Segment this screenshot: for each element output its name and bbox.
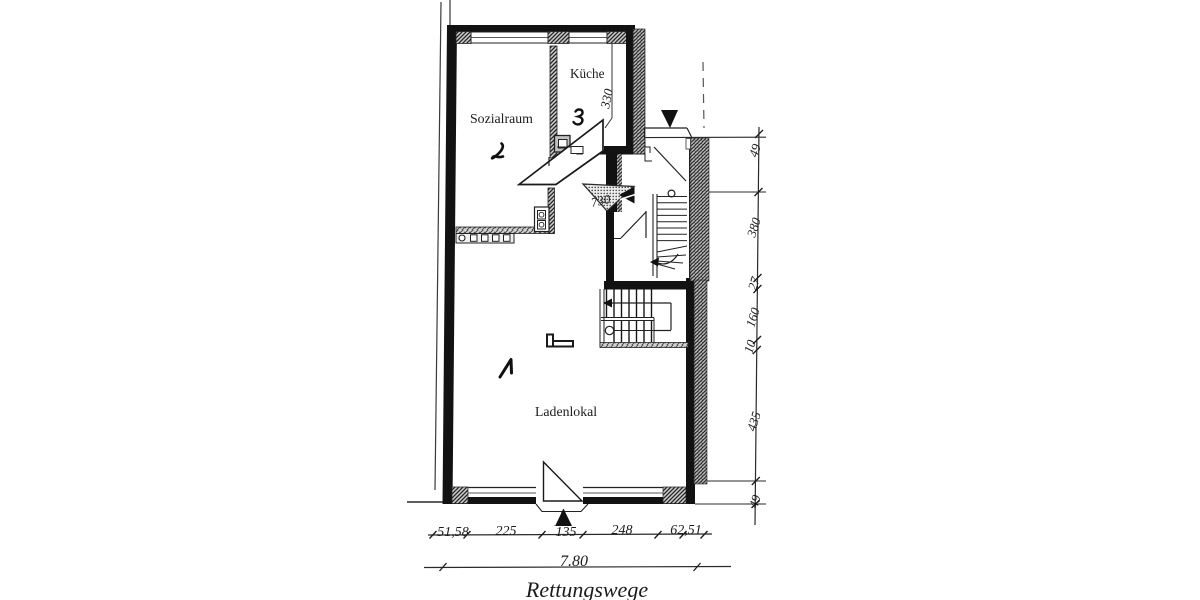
svg-text:160: 160 [743, 305, 763, 329]
svg-text:135: 135 [556, 525, 577, 540]
svg-text:49: 49 [746, 141, 764, 158]
svg-text:380: 380 [743, 215, 764, 240]
svg-text:27: 27 [745, 274, 763, 291]
svg-text:49: 49 [746, 492, 764, 509]
svg-text:248: 248 [612, 523, 633, 538]
svg-text:225: 225 [496, 524, 517, 539]
svg-text:Ladenlokal: Ladenlokal [535, 404, 597, 419]
svg-text:51,58: 51,58 [437, 525, 469, 540]
svg-text:435: 435 [744, 409, 764, 433]
svg-text:Küche: Küche [570, 66, 605, 81]
svg-text:Rettungswege: Rettungswege [525, 577, 648, 600]
svg-text:62,51: 62,51 [670, 523, 702, 538]
svg-text:330: 330 [597, 87, 616, 111]
svg-text:Sozialraum: Sozialraum [470, 111, 533, 126]
svg-text:7.80: 7.80 [560, 553, 588, 570]
